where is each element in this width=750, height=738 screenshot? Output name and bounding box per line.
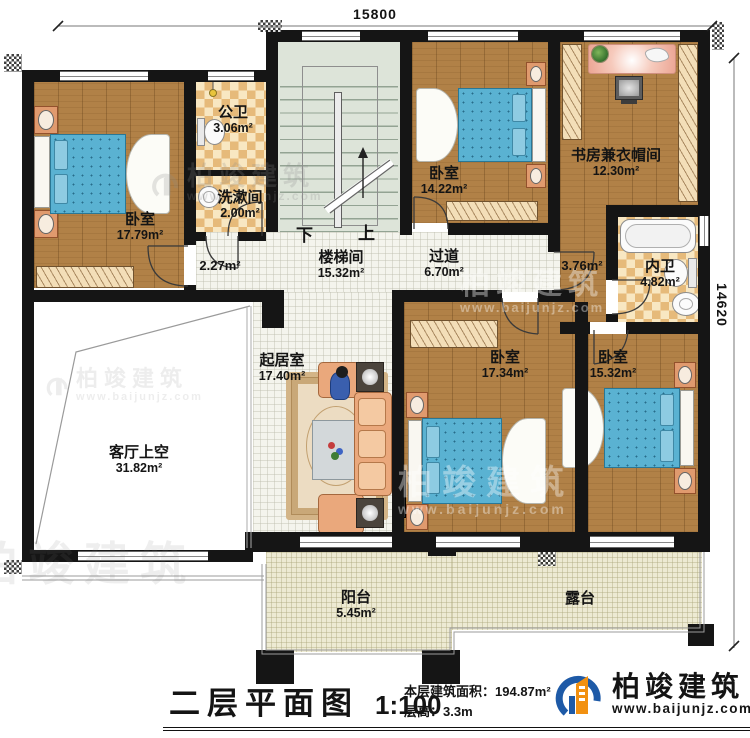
hatch-mark — [712, 22, 724, 50]
wall — [606, 217, 618, 280]
nightstand — [526, 62, 546, 86]
window — [208, 71, 254, 81]
pillow — [426, 426, 440, 458]
floor-area-value: 194.87m² — [495, 684, 551, 699]
flowers — [331, 452, 339, 460]
column — [688, 624, 714, 646]
wall — [606, 314, 618, 322]
window — [584, 31, 680, 41]
wall — [626, 322, 710, 334]
side-table — [356, 362, 384, 392]
pillow — [512, 94, 526, 122]
wall — [606, 205, 698, 217]
window — [428, 31, 518, 41]
toilet — [664, 259, 688, 287]
hatch-mark — [4, 560, 22, 574]
nightstand — [526, 164, 546, 188]
brand-name: 柏竣建筑 — [612, 673, 750, 701]
bed-duvet — [502, 418, 546, 504]
floor-height-label: 层高： — [404, 704, 443, 719]
window — [436, 536, 520, 548]
wall-column — [262, 290, 284, 328]
nightstand — [406, 392, 428, 418]
wall — [238, 232, 266, 241]
wall — [538, 290, 575, 302]
nightstand — [674, 362, 696, 388]
nightstand — [674, 468, 696, 494]
room-floor-balcony — [266, 552, 452, 652]
side-table — [356, 498, 384, 528]
wardrobe — [562, 44, 582, 140]
wall — [698, 30, 710, 552]
room-floor-corridor — [196, 232, 560, 292]
pillow — [512, 128, 526, 156]
monitor-stand — [621, 100, 637, 104]
pillow — [660, 394, 674, 426]
stair-up-label: 上 — [358, 219, 375, 244]
sink — [672, 292, 700, 316]
room-floor-terrace — [452, 552, 702, 630]
window — [78, 551, 208, 561]
person-head — [336, 366, 348, 378]
wall — [448, 223, 548, 235]
nightstand — [406, 504, 428, 530]
pillow — [660, 430, 674, 462]
brand-logo: 柏竣建筑 www.baijunjz.com — [552, 668, 750, 720]
stair-down-label: 下 — [296, 221, 313, 246]
wall — [22, 290, 282, 302]
window — [699, 216, 709, 246]
floor-area-label: 本层建筑面积： — [404, 684, 495, 699]
sofa-cushion — [358, 430, 386, 458]
stair-rail — [334, 92, 342, 228]
computer-monitor — [615, 76, 643, 100]
flowers — [328, 442, 335, 449]
ceiling-light — [209, 89, 217, 97]
wardrobe — [36, 266, 134, 288]
pillow — [54, 140, 68, 170]
toilet — [204, 119, 225, 145]
dimension-right: 14620 — [714, 270, 730, 340]
floor-plan: 柏竣建筑 www.baijunjz.com 柏竣建筑 www.baijunjz.… — [0, 0, 750, 738]
bed-headboard — [408, 420, 422, 502]
brand-url: www.baijunjz.com — [612, 701, 750, 716]
room-floor-void — [34, 302, 245, 550]
floor-height-value: 3.3m — [443, 704, 473, 719]
plan-stats: 本层建筑面积：194.87m² 层高：3.3m — [404, 682, 551, 722]
wall — [184, 82, 196, 245]
wardrobe — [678, 44, 698, 202]
wardrobe — [410, 320, 498, 348]
brand-logo-icon — [552, 668, 604, 720]
plant — [592, 46, 608, 62]
bed-duvet — [126, 134, 170, 214]
window — [302, 31, 360, 41]
wall — [400, 42, 412, 235]
pillow — [426, 462, 440, 494]
wardrobe — [446, 201, 538, 221]
wall — [266, 42, 278, 232]
bathtub — [620, 219, 696, 253]
wall — [392, 290, 502, 302]
wall — [548, 42, 560, 252]
toilet-tank — [688, 258, 697, 288]
wall — [575, 302, 588, 552]
hatch-mark — [538, 552, 556, 566]
window — [590, 536, 674, 548]
bed-headboard — [680, 390, 694, 466]
hatch-mark — [258, 20, 282, 32]
wall — [196, 170, 266, 176]
balcony-door — [300, 536, 392, 548]
sofa-cushion — [358, 462, 386, 490]
bed-headboard — [532, 88, 546, 162]
pillow — [54, 174, 68, 204]
window — [60, 71, 148, 81]
dimension-top: 15800 — [340, 6, 410, 22]
wall — [560, 322, 590, 334]
bed-headboard — [34, 136, 50, 208]
wall — [196, 232, 206, 241]
plan-title: 二层平面图 — [169, 678, 359, 723]
hatch-mark — [4, 54, 22, 72]
washbasin — [198, 186, 220, 208]
nightstand — [34, 210, 58, 238]
wall — [392, 302, 404, 532]
sofa-cushion — [358, 398, 386, 426]
wall — [22, 70, 34, 562]
nightstand — [34, 106, 58, 134]
